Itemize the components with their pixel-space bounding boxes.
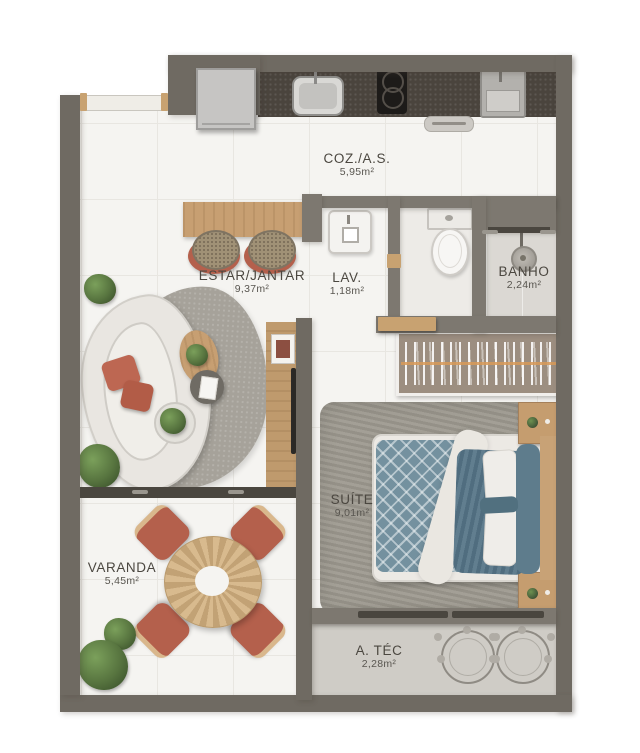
wall-left <box>60 95 80 695</box>
door-frame <box>387 254 401 268</box>
toilet-bowl <box>431 228 469 276</box>
floor-plant <box>78 640 128 690</box>
wall-living-suite <box>296 318 312 700</box>
window <box>80 95 168 111</box>
kitchen-sink <box>292 76 344 116</box>
nightstand-knob <box>545 590 550 595</box>
nightstand-plant <box>527 417 538 428</box>
wardrobe <box>396 331 562 396</box>
wall-bottom <box>60 695 572 712</box>
room-area: 2,24m² <box>498 279 549 291</box>
sofa-cushion <box>119 379 154 413</box>
shower-glass <box>488 227 550 233</box>
cooktop <box>377 66 407 114</box>
laundry-sink <box>480 68 526 118</box>
room-area: 1,18m² <box>330 285 364 297</box>
door-track <box>452 611 544 618</box>
exterior-mask <box>76 40 170 95</box>
room-label-suite: SUÍTE 9,01m² <box>331 492 374 519</box>
room-area: 9,01m² <box>331 507 374 519</box>
pillow <box>483 507 520 567</box>
room-label-estar: ESTAR/JANTAR 9,37m² <box>199 268 305 295</box>
room-area: 9,37m² <box>199 283 305 295</box>
closet-rail <box>401 362 557 365</box>
door-track <box>358 611 448 618</box>
room-name: VARANDA <box>88 560 156 575</box>
wall-toilet-banho <box>472 196 486 332</box>
floor-plan: COZ./A.S. 5,95m² ESTAR/JANTAR 9,37m² LAV… <box>0 0 640 753</box>
room-area: 2,28m² <box>356 658 403 670</box>
room-label-coz: COZ./A.S. 5,95m² <box>324 151 391 178</box>
table-center <box>195 566 229 596</box>
window-frame <box>80 93 87 111</box>
refrigerator <box>196 68 256 130</box>
accent-pillow <box>480 496 519 514</box>
nightstand-plant <box>527 588 538 599</box>
toilet-tank <box>427 208 473 230</box>
condenser-unit <box>441 630 495 684</box>
floor-plant <box>84 274 116 304</box>
varanda-door-track <box>80 487 296 498</box>
wall-right <box>556 55 572 712</box>
headboard <box>540 436 556 580</box>
room-label-varanda: VARANDA 5,45m² <box>88 560 156 587</box>
wall-bar-stub <box>302 194 322 242</box>
room-label-lav: LAV. 1,18m² <box>330 270 364 297</box>
counter-drawer <box>424 116 474 132</box>
table-plant <box>186 344 208 366</box>
condenser-unit <box>496 630 550 684</box>
shower-head <box>520 233 523 247</box>
picture-frame <box>271 334 295 364</box>
room-name: ESTAR/JANTAR <box>199 268 305 283</box>
room-name: SUÍTE <box>331 492 374 507</box>
room-name: COZ./A.S. <box>324 151 391 166</box>
room-area: 5,45m² <box>88 575 156 587</box>
book <box>199 376 219 400</box>
room-label-banho: BANHO 2,24m² <box>498 264 549 291</box>
sliding-door <box>378 317 436 331</box>
washbasin <box>328 210 372 254</box>
floor-plant <box>78 444 120 488</box>
room-name: LAV. <box>330 270 364 285</box>
nightstand-knob <box>545 419 550 424</box>
room-name: BANHO <box>498 264 549 279</box>
table-plant <box>160 408 186 434</box>
room-label-atec: A. TÉC 2,28m² <box>356 643 403 670</box>
room-area: 5,95m² <box>324 166 391 178</box>
bolster-pillow <box>516 444 540 574</box>
room-name: A. TÉC <box>356 643 403 658</box>
window-frame <box>161 93 168 111</box>
